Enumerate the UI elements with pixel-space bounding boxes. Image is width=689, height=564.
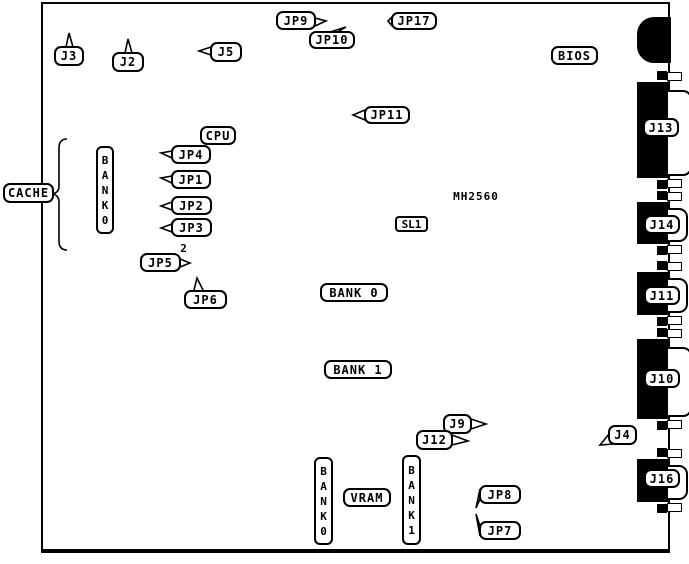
label-j2: J2 bbox=[112, 52, 144, 72]
j16-screw bbox=[667, 449, 682, 458]
label-j10: J10 bbox=[644, 369, 680, 388]
j11-screw bbox=[667, 316, 682, 325]
j10-screw bbox=[667, 329, 682, 338]
label-cpu: CPU bbox=[200, 126, 236, 145]
label-model: MH2560 bbox=[450, 190, 502, 203]
j16-post bbox=[657, 448, 667, 457]
label-j13: J13 bbox=[643, 118, 679, 137]
board-outline bbox=[41, 2, 670, 553]
j14-screw bbox=[667, 192, 682, 201]
label-sl1: SL1 bbox=[395, 216, 428, 232]
label-vram: VRAM bbox=[343, 488, 391, 507]
label-jp2: JP2 bbox=[171, 196, 212, 215]
label-jp3: JP3 bbox=[171, 218, 212, 237]
j16-post bbox=[657, 504, 667, 513]
label-jp17: JP17 bbox=[391, 12, 437, 30]
label-j16: J16 bbox=[644, 469, 680, 488]
label-j5: J5 bbox=[210, 42, 242, 62]
j10-screw bbox=[667, 420, 682, 429]
j14-screw bbox=[667, 245, 682, 254]
label-jp7: JP7 bbox=[479, 521, 521, 540]
label-jp10: JP10 bbox=[309, 31, 355, 49]
motherboard-diagram: J3J2J5JP9JP10JP17JP11BIOSCPUJP4JP1JP2JP3… bbox=[0, 0, 689, 564]
label-bank0-simm: BANK 0 bbox=[320, 283, 388, 302]
label-j11: J11 bbox=[644, 286, 680, 305]
j13-post bbox=[657, 71, 667, 80]
j13-screw bbox=[667, 179, 682, 188]
label-j12: J12 bbox=[416, 430, 453, 450]
label-bank0-cache: BANK0 bbox=[96, 146, 114, 234]
label-bank1-simm: BANK 1 bbox=[324, 360, 392, 379]
j10-post bbox=[657, 421, 667, 430]
j14-post bbox=[657, 246, 667, 255]
label-cache: CACHE bbox=[3, 183, 54, 203]
label-jp1: JP1 bbox=[171, 170, 211, 189]
j11-post bbox=[657, 261, 667, 270]
label-pin2: 2 bbox=[178, 242, 190, 255]
keyboard-connector bbox=[637, 17, 671, 63]
label-jp4: JP4 bbox=[171, 145, 211, 164]
j14-post bbox=[657, 191, 667, 200]
j16-screw bbox=[667, 503, 682, 512]
j13-screw bbox=[667, 72, 682, 81]
label-bank1-vram: BANK1 bbox=[402, 455, 421, 545]
label-jp8: JP8 bbox=[479, 485, 521, 504]
label-j14: J14 bbox=[644, 215, 680, 234]
label-j4: J4 bbox=[608, 425, 637, 445]
j10-post bbox=[657, 328, 667, 337]
j13-post bbox=[657, 180, 667, 189]
label-bios: BIOS bbox=[551, 46, 598, 65]
label-bank0-vram: BANK0 bbox=[314, 457, 333, 545]
label-jp11: JP11 bbox=[364, 106, 410, 124]
j11-screw bbox=[667, 262, 682, 271]
label-jp6: JP6 bbox=[184, 290, 227, 309]
label-jp5: JP5 bbox=[140, 253, 181, 272]
j11-post bbox=[657, 317, 667, 326]
label-jp9: JP9 bbox=[276, 11, 316, 30]
label-j3: J3 bbox=[54, 46, 84, 66]
